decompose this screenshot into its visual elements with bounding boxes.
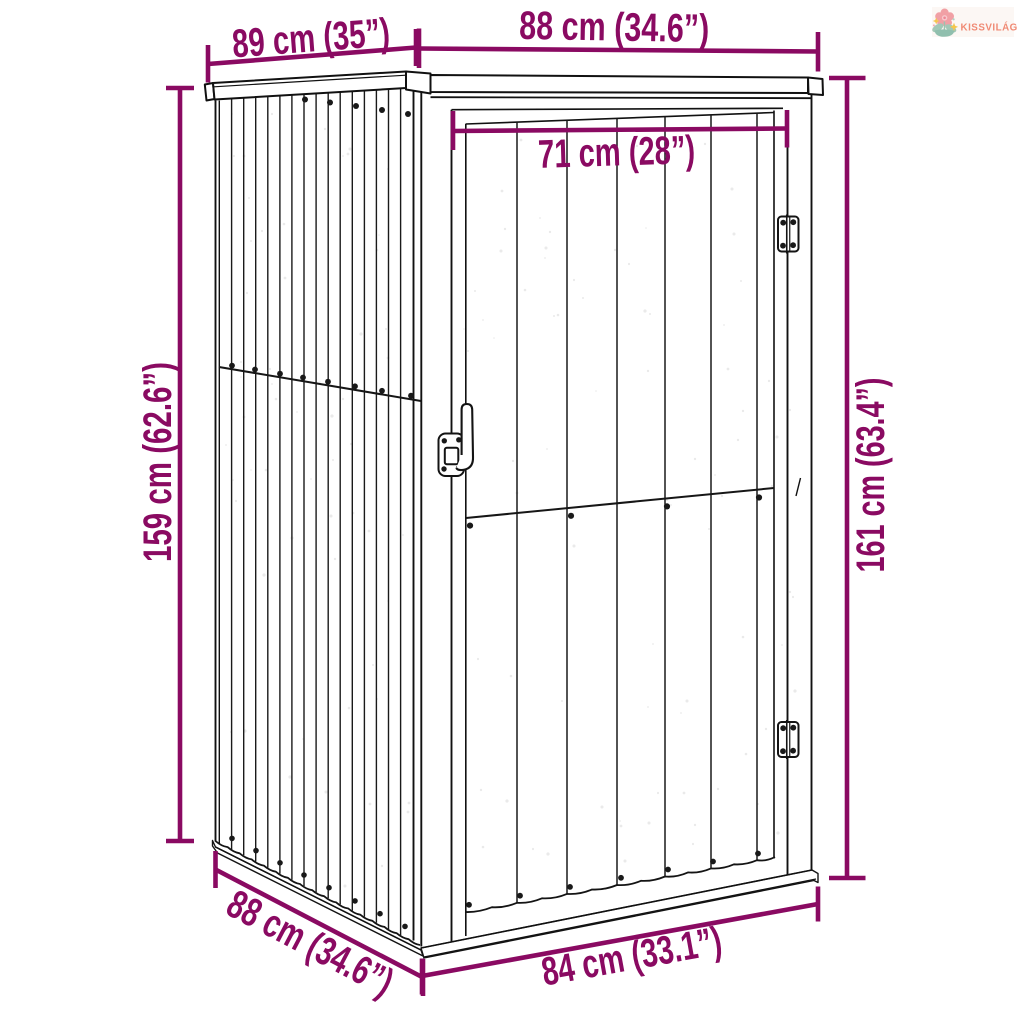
svg-text:71 cm (28”): 71 cm (28”) [537,128,695,177]
svg-text:161 cm (63.4”): 161 cm (63.4”) [849,378,893,573]
svg-text:159 cm (62.6”): 159 cm (62.6”) [136,362,180,562]
svg-text:KISSVILÁG: KISSVILÁG [961,22,1018,34]
svg-text:88 cm (34.6”): 88 cm (34.6”) [519,4,710,51]
